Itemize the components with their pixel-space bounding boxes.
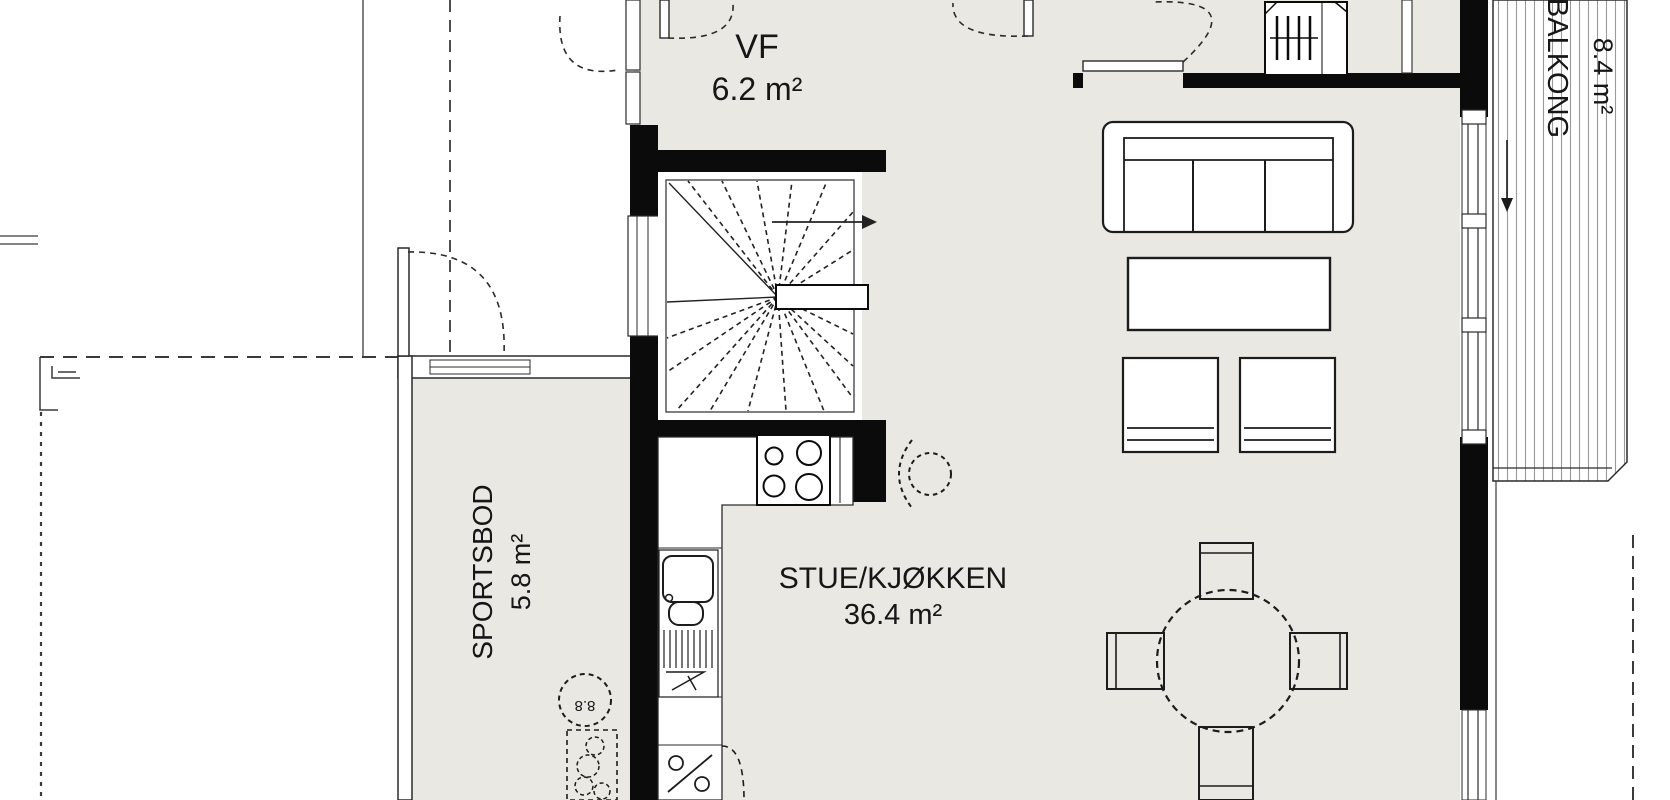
armchair-left xyxy=(1123,358,1218,452)
entry-door-frame xyxy=(626,0,640,70)
stue-area: 36.4 m² xyxy=(844,599,943,631)
wall-post xyxy=(1402,0,1412,73)
staircase xyxy=(658,172,877,420)
stove xyxy=(757,435,830,505)
stue-label: STUE/KJØKKEN xyxy=(779,562,1007,595)
armchair-right xyxy=(1240,358,1335,452)
vf-area: 6.2 m² xyxy=(712,71,803,107)
circle-note-label: 8.8 xyxy=(575,697,596,714)
stair-handrail xyxy=(776,285,868,309)
sportsbod-area: 5.8 m² xyxy=(506,534,536,611)
door-a-leaf xyxy=(660,0,669,38)
balkong-area: 8.4 m² xyxy=(1588,38,1618,115)
entry-door-swing xyxy=(560,16,618,71)
chimney xyxy=(1265,2,1347,75)
sportsbod-label: SPORTSBOD xyxy=(467,484,498,659)
coffee-table xyxy=(1128,258,1330,330)
vf-label: VF xyxy=(735,28,778,66)
left-window xyxy=(628,216,660,336)
balkong-label: BALKONG xyxy=(1541,0,1573,138)
floor-plan: VF 6.2 m² STUE/KJØKKEN 36.4 m² SPORTSBOD… xyxy=(0,0,1670,800)
sofa xyxy=(1103,122,1353,232)
site-outline-left xyxy=(0,0,450,800)
sportsbod-door-leaf xyxy=(398,248,409,356)
door-b-leaf xyxy=(1024,0,1033,36)
sportsbod-door-swing xyxy=(408,252,504,354)
door-c-leaf xyxy=(1083,61,1183,71)
